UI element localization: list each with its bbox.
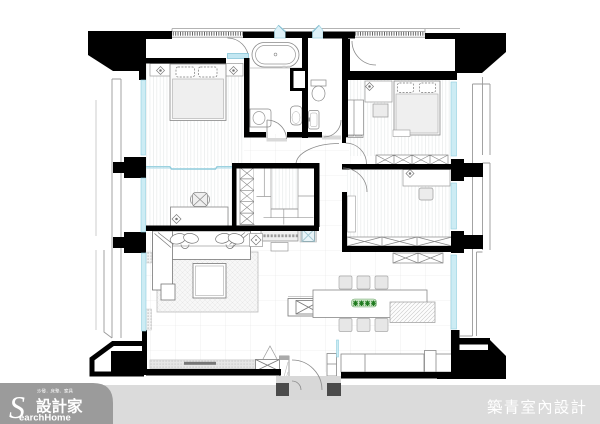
svg-text:沙發．床墊．家具: 沙發．床墊．家具 xyxy=(37,388,73,395)
svg-text:earchHome: earchHome xyxy=(19,413,71,424)
svg-text:築青室內設計: 築青室內設計 xyxy=(487,399,587,417)
